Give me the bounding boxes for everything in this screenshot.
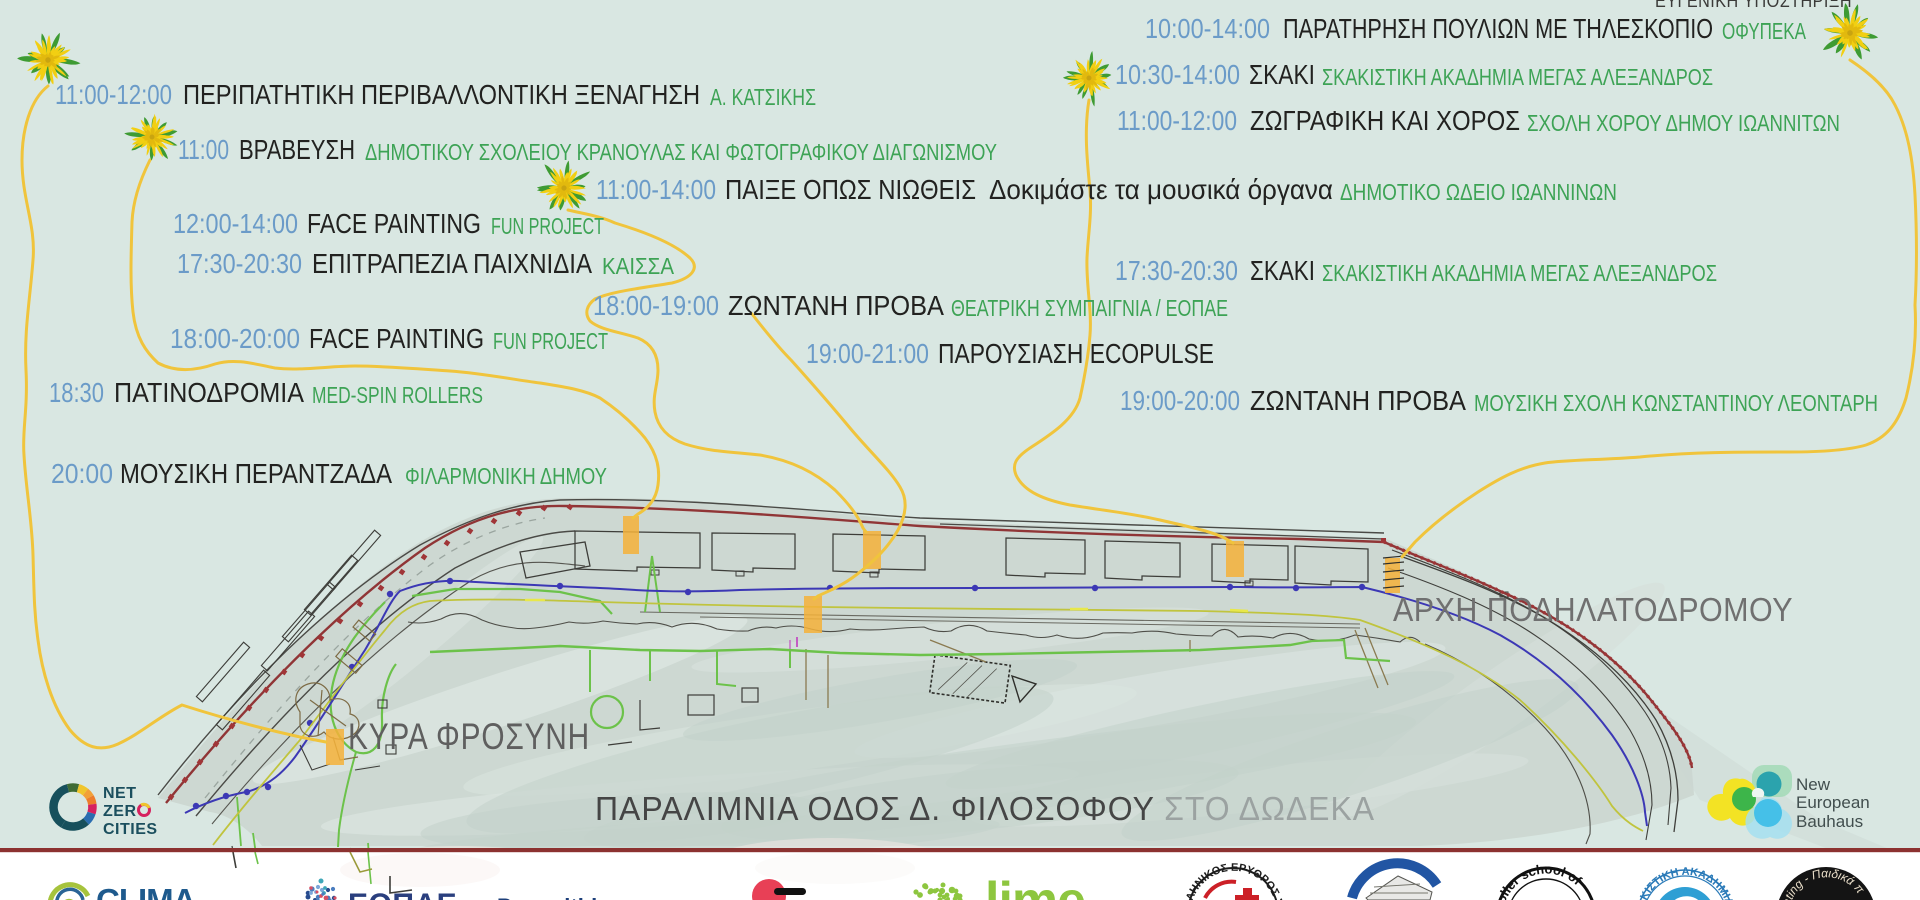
svg-text:Bauhaus: Bauhaus <box>1796 812 1863 831</box>
svg-text:CLIMA: CLIMA <box>96 882 196 900</box>
svg-text:lime: lime <box>985 872 1085 900</box>
svg-text:New: New <box>1796 775 1831 794</box>
svg-text:NET: NET <box>103 785 137 802</box>
svg-text:ΕΟΠΑΕ: ΕΟΠΑΕ <box>348 888 457 900</box>
svg-text:CITIES: CITIES <box>103 821 158 838</box>
svg-text:European: European <box>1796 793 1870 812</box>
svg-text:ZER: ZER <box>103 803 137 820</box>
svg-text:Paramithi: Paramithi <box>497 894 597 900</box>
